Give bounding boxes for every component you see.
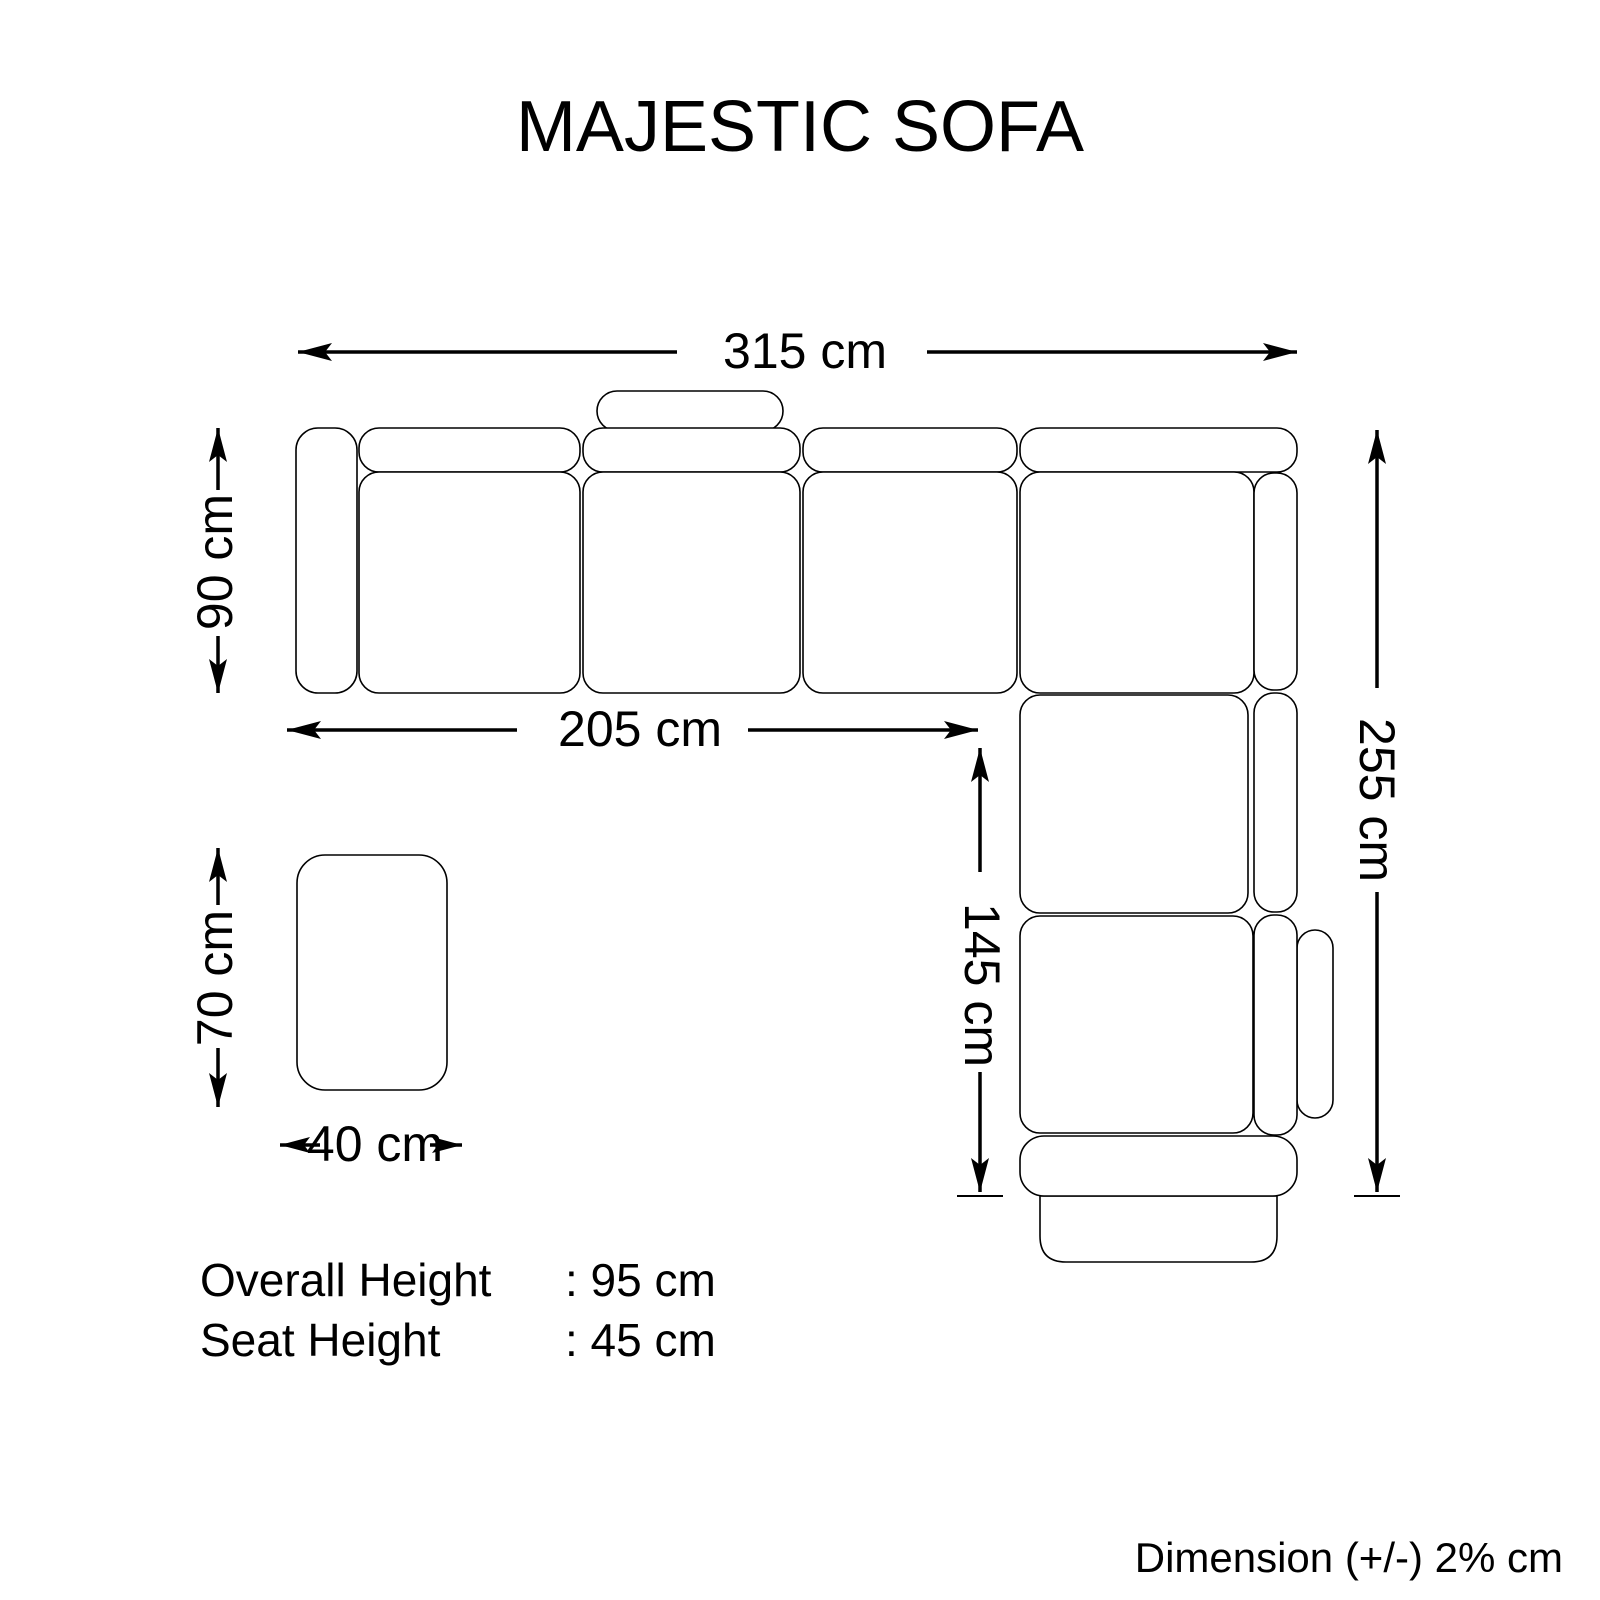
spec-value: : 95 cm bbox=[565, 1253, 716, 1307]
back-cushion bbox=[583, 428, 800, 472]
back-cushion bbox=[1020, 428, 1297, 472]
dim-label-ottoman-length: 70 cm bbox=[186, 910, 244, 1046]
tolerance-note: Dimension (+/-) 2% cm bbox=[1135, 1534, 1563, 1582]
footrest bbox=[1020, 1136, 1297, 1196]
dim-label-left-wing-width: 205 cm bbox=[558, 700, 722, 758]
left-armrest bbox=[296, 428, 357, 693]
spec-label: Seat Height bbox=[200, 1313, 565, 1367]
dim-label-seat-depth: 90 cm bbox=[186, 494, 244, 630]
sofa-dimension-diagram: MAJESTIC SOFA 315 cm 90 cm 205 cm 145 cm… bbox=[0, 0, 1600, 1600]
spec-label: Overall Height bbox=[200, 1253, 565, 1307]
corner-seat bbox=[1020, 472, 1254, 693]
dim-label-overall-width: 315 cm bbox=[723, 322, 887, 380]
spec-row-overall-height: Overall Height : 95 cm bbox=[200, 1250, 716, 1310]
seat-cushion bbox=[359, 472, 580, 693]
spec-table: Overall Height : 95 cm Seat Height : 45 … bbox=[200, 1250, 716, 1370]
seat-cushion bbox=[583, 472, 800, 693]
back-strip bbox=[1254, 915, 1297, 1135]
dim-label-ottoman-width: 40 cm bbox=[307, 1115, 443, 1173]
chaise-seat bbox=[1020, 695, 1248, 913]
back-cushion bbox=[359, 428, 580, 472]
dim-label-overall-depth: 255 cm bbox=[1348, 718, 1406, 882]
back-strip bbox=[1254, 473, 1297, 690]
diagram-title: MAJESTIC SOFA bbox=[516, 86, 1084, 168]
dim-label-chaise-extension: 145 cm bbox=[953, 903, 1011, 1067]
headrest-pillow bbox=[597, 391, 783, 431]
back-strip bbox=[1254, 693, 1297, 912]
ottoman bbox=[297, 855, 447, 1090]
side-pillow bbox=[1297, 930, 1333, 1118]
chaise-seat bbox=[1020, 916, 1253, 1133]
back-cushion bbox=[803, 428, 1017, 472]
seat-cushion bbox=[803, 472, 1017, 693]
base-platform bbox=[1040, 1196, 1277, 1262]
spec-row-seat-height: Seat Height : 45 cm bbox=[200, 1310, 716, 1370]
spec-value: : 45 cm bbox=[565, 1313, 716, 1367]
